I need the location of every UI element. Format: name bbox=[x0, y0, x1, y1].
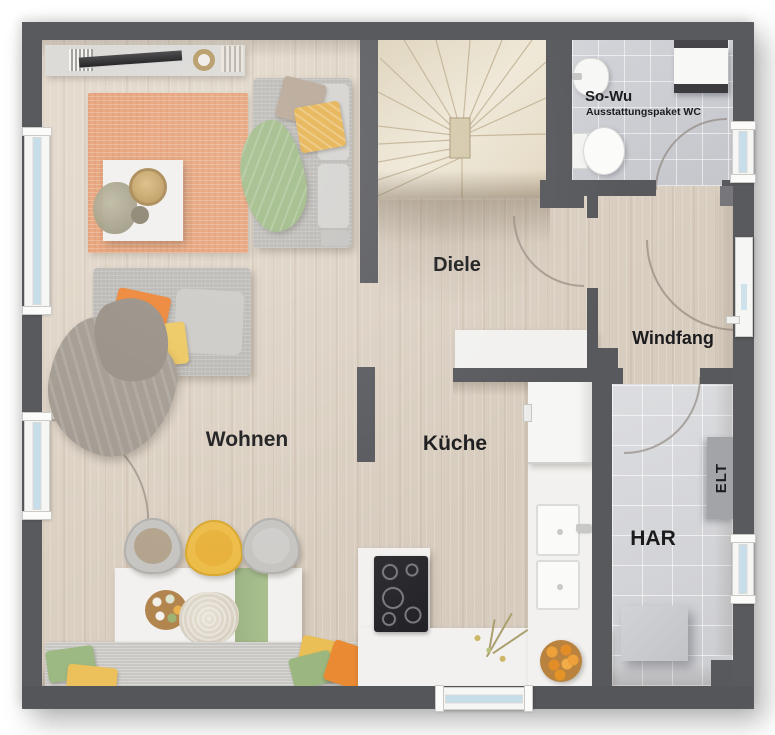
table-runner bbox=[235, 568, 268, 652]
kitchen-sink bbox=[536, 504, 580, 556]
wall-notch bbox=[711, 660, 735, 688]
staircase bbox=[378, 40, 546, 198]
wc-window bbox=[732, 122, 754, 182]
coffee-table bbox=[103, 160, 183, 241]
entrance-door bbox=[735, 237, 753, 337]
elt-label: ELT bbox=[713, 463, 730, 493]
floor-plan: ELT Wohnen Diele Küche Windfang HAR So-W… bbox=[0, 0, 775, 735]
wc-faucet bbox=[572, 73, 582, 80]
washing-machine-door bbox=[674, 84, 728, 93]
room-label-wohnen: Wohnen bbox=[197, 428, 297, 452]
gold-tray bbox=[129, 168, 167, 206]
drain bbox=[557, 529, 563, 535]
wall bbox=[700, 368, 733, 384]
window bbox=[24, 128, 50, 314]
terrace-door bbox=[24, 413, 50, 519]
washing-machine bbox=[674, 48, 728, 93]
exterior-wall-left bbox=[22, 22, 42, 708]
kitchen-window bbox=[436, 687, 532, 710]
vase bbox=[131, 206, 149, 224]
wall bbox=[360, 40, 378, 283]
window-cap bbox=[730, 174, 756, 183]
elt-panel: ELT bbox=[707, 437, 735, 519]
wall bbox=[592, 377, 612, 686]
window-cap bbox=[22, 511, 52, 520]
wall bbox=[540, 180, 656, 196]
toilet-bowl bbox=[583, 127, 625, 175]
door-handle bbox=[726, 316, 740, 324]
sideboard bbox=[45, 45, 245, 76]
wall bbox=[357, 367, 375, 462]
hall-sideboard bbox=[455, 330, 595, 368]
drain bbox=[557, 584, 563, 590]
stem bbox=[492, 629, 528, 654]
room-label-wc: So-Wu bbox=[585, 88, 632, 105]
sofa bbox=[253, 78, 352, 248]
flower-sprig bbox=[460, 597, 540, 682]
dried-flowers bbox=[179, 592, 239, 646]
wall bbox=[453, 368, 600, 382]
window-cap bbox=[435, 685, 444, 712]
wall-pier bbox=[720, 186, 734, 206]
fridge bbox=[528, 378, 592, 464]
wall bbox=[587, 196, 598, 218]
room-label-kueche: Küche bbox=[405, 432, 505, 456]
heat-pump bbox=[621, 606, 688, 661]
room-label-diele: Diele bbox=[417, 254, 497, 277]
room-label-har: HAR bbox=[613, 527, 693, 551]
bud bbox=[486, 647, 492, 653]
room-label-windfang: Windfang bbox=[613, 328, 733, 349]
dining-table bbox=[115, 568, 302, 652]
chair-cushion bbox=[252, 528, 290, 564]
exterior-wall-bottom bbox=[22, 686, 753, 708]
wall bbox=[546, 40, 572, 188]
sofa-back-cushion bbox=[318, 164, 349, 228]
decor-ring bbox=[193, 49, 215, 71]
pillow bbox=[293, 100, 346, 153]
window-cap bbox=[22, 306, 52, 315]
toilet bbox=[572, 126, 624, 174]
bud bbox=[474, 635, 481, 642]
exterior-wall-top bbox=[22, 22, 753, 40]
window-cap bbox=[524, 685, 533, 712]
har-window bbox=[732, 535, 754, 603]
chair-cushion bbox=[134, 528, 172, 564]
window-cap bbox=[730, 595, 756, 604]
cooktop bbox=[374, 556, 428, 632]
chair-cushion bbox=[195, 530, 233, 566]
window-cap bbox=[730, 534, 756, 543]
soundbar bbox=[79, 50, 182, 67]
books-stack bbox=[221, 46, 243, 72]
bud bbox=[499, 655, 506, 662]
room-sublabel-wc: Ausstattungspaket WC bbox=[586, 106, 701, 118]
window-cap bbox=[730, 121, 756, 130]
bench bbox=[45, 642, 358, 688]
fridge-handle bbox=[523, 404, 532, 422]
window-cap bbox=[22, 412, 52, 421]
wall bbox=[612, 368, 623, 384]
fruit-bowl bbox=[540, 640, 582, 682]
window-cap bbox=[22, 127, 52, 136]
sofa-armrest bbox=[321, 230, 349, 246]
faucet bbox=[576, 524, 591, 532]
kitchen-sink bbox=[536, 560, 580, 610]
